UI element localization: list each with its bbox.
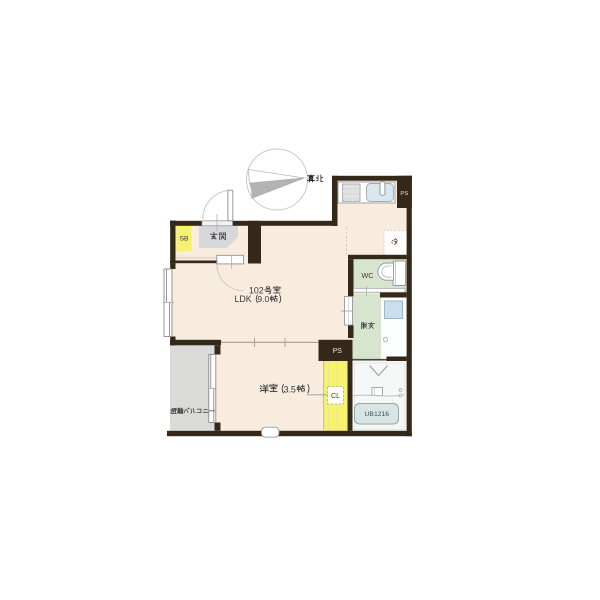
svg-text:SB: SB <box>179 236 189 243</box>
svg-text:PS: PS <box>333 348 343 355</box>
svg-text:PS: PS <box>400 191 408 197</box>
svg-text:9.0: 9.0 <box>257 294 269 304</box>
svg-text:WC: WC <box>362 271 374 280</box>
svg-text:3.5: 3.5 <box>284 384 296 394</box>
svg-text:LDK: LDK <box>235 294 252 304</box>
svg-text:CL: CL <box>331 393 340 400</box>
svg-text:UB1216: UB1216 <box>365 411 390 418</box>
